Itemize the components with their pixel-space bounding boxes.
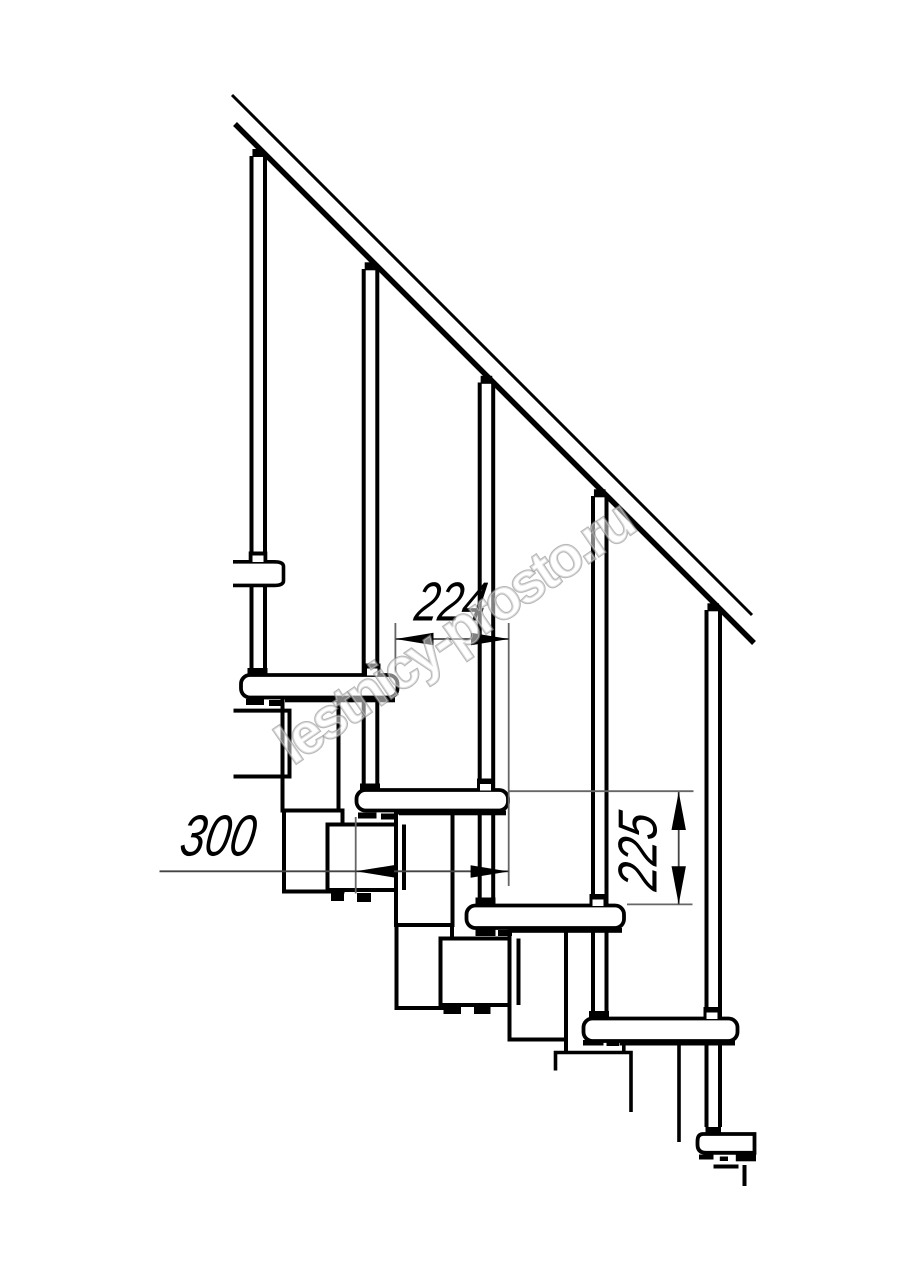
svg-text:225: 225 [607,807,669,895]
svg-text:300: 300 [176,804,261,869]
